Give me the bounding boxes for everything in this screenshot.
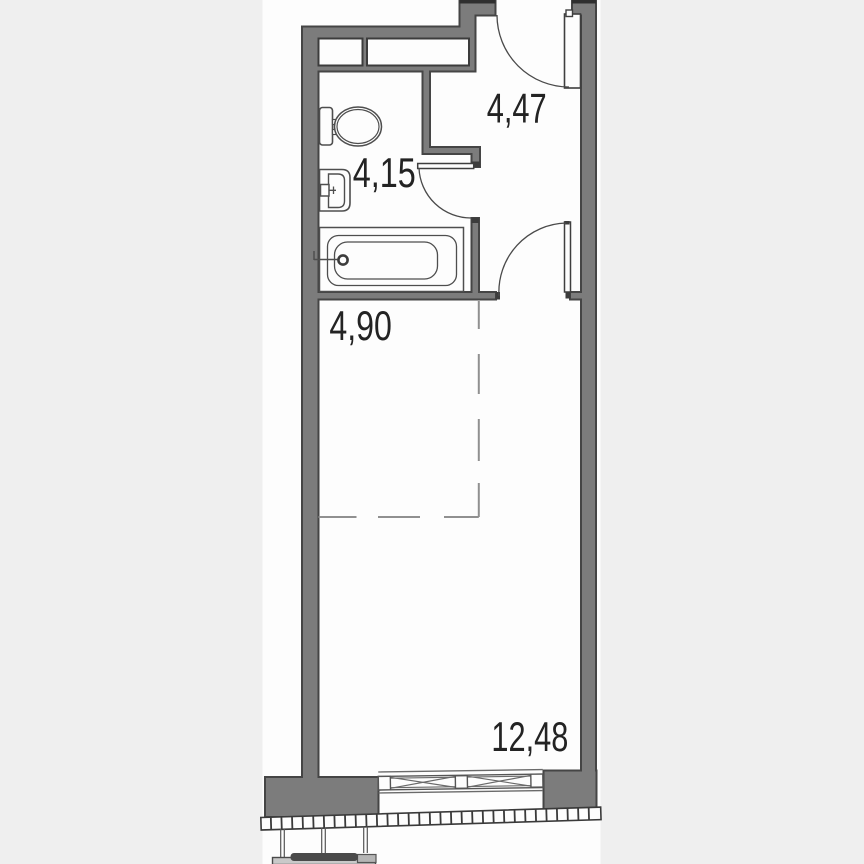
svg-text:12,48: 12,48 bbox=[491, 713, 568, 760]
svg-text:4,15: 4,15 bbox=[353, 149, 416, 196]
svg-text:4,90: 4,90 bbox=[329, 302, 392, 349]
svg-text:4,47: 4,47 bbox=[487, 84, 547, 131]
